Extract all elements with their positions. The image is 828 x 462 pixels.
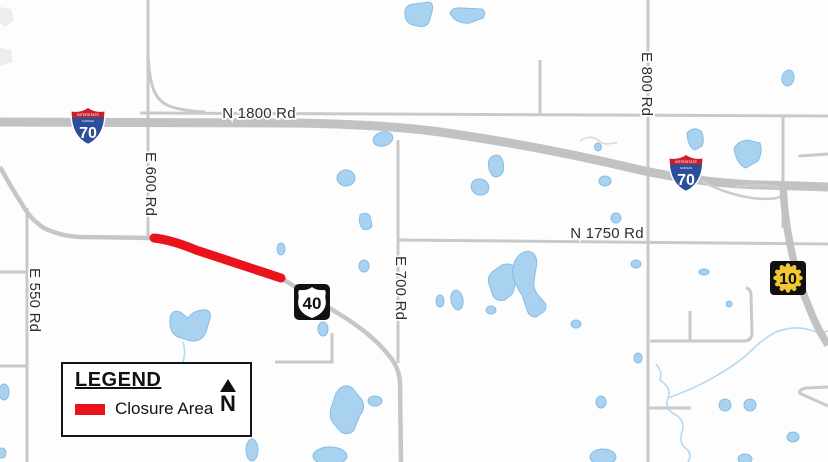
road-label-e550: E 550 Rd	[26, 268, 43, 332]
north-indicator: N	[215, 379, 241, 415]
i70-shield-east: INTERSTATE KANSAS 70	[669, 155, 703, 192]
us40-number: 40	[303, 294, 322, 313]
road-e600-curve	[148, 56, 205, 112]
closure-line	[154, 238, 281, 278]
k10-shield: 10	[770, 261, 806, 295]
streams	[178, 328, 828, 462]
road-labels: N 1800 Rd N 1750 Rd E 550 Rd E 600 Rd E …	[26, 52, 655, 332]
svg-text:70: 70	[677, 172, 695, 189]
gray-patches	[0, 7, 14, 66]
legend-box: LEGEND Closure Area N	[61, 362, 252, 437]
svg-text:INTERSTATE: INTERSTATE	[675, 160, 697, 164]
road-label-e800: E 800 Rd	[638, 52, 655, 116]
k10-number: 10	[779, 271, 797, 288]
road-label-n1750: N 1750 Rd	[570, 225, 644, 242]
road-label-e700: E 700 Rd	[392, 256, 409, 320]
svg-text:KANSAS: KANSAS	[680, 166, 692, 170]
us40-shield: 40	[294, 284, 330, 320]
interstate-banner-text: INTERSTATE	[77, 113, 99, 117]
highway-i70	[0, 122, 828, 187]
closure-map-page: INTERSTATE KANSAS 70 INTERSTATE KANSAS 7…	[0, 0, 828, 462]
road-label-n1800: N 1800 Rd	[222, 105, 296, 122]
closure-swatch-icon	[75, 404, 105, 415]
i70-number: 70	[79, 125, 97, 142]
closure-label: Closure Area	[115, 399, 213, 419]
north-label: N	[215, 393, 241, 415]
road-label-e600: E 600 Rd	[142, 152, 159, 216]
interstate-state-text: KANSAS	[82, 119, 94, 123]
i70-shield: INTERSTATE KANSAS 70	[71, 108, 105, 145]
